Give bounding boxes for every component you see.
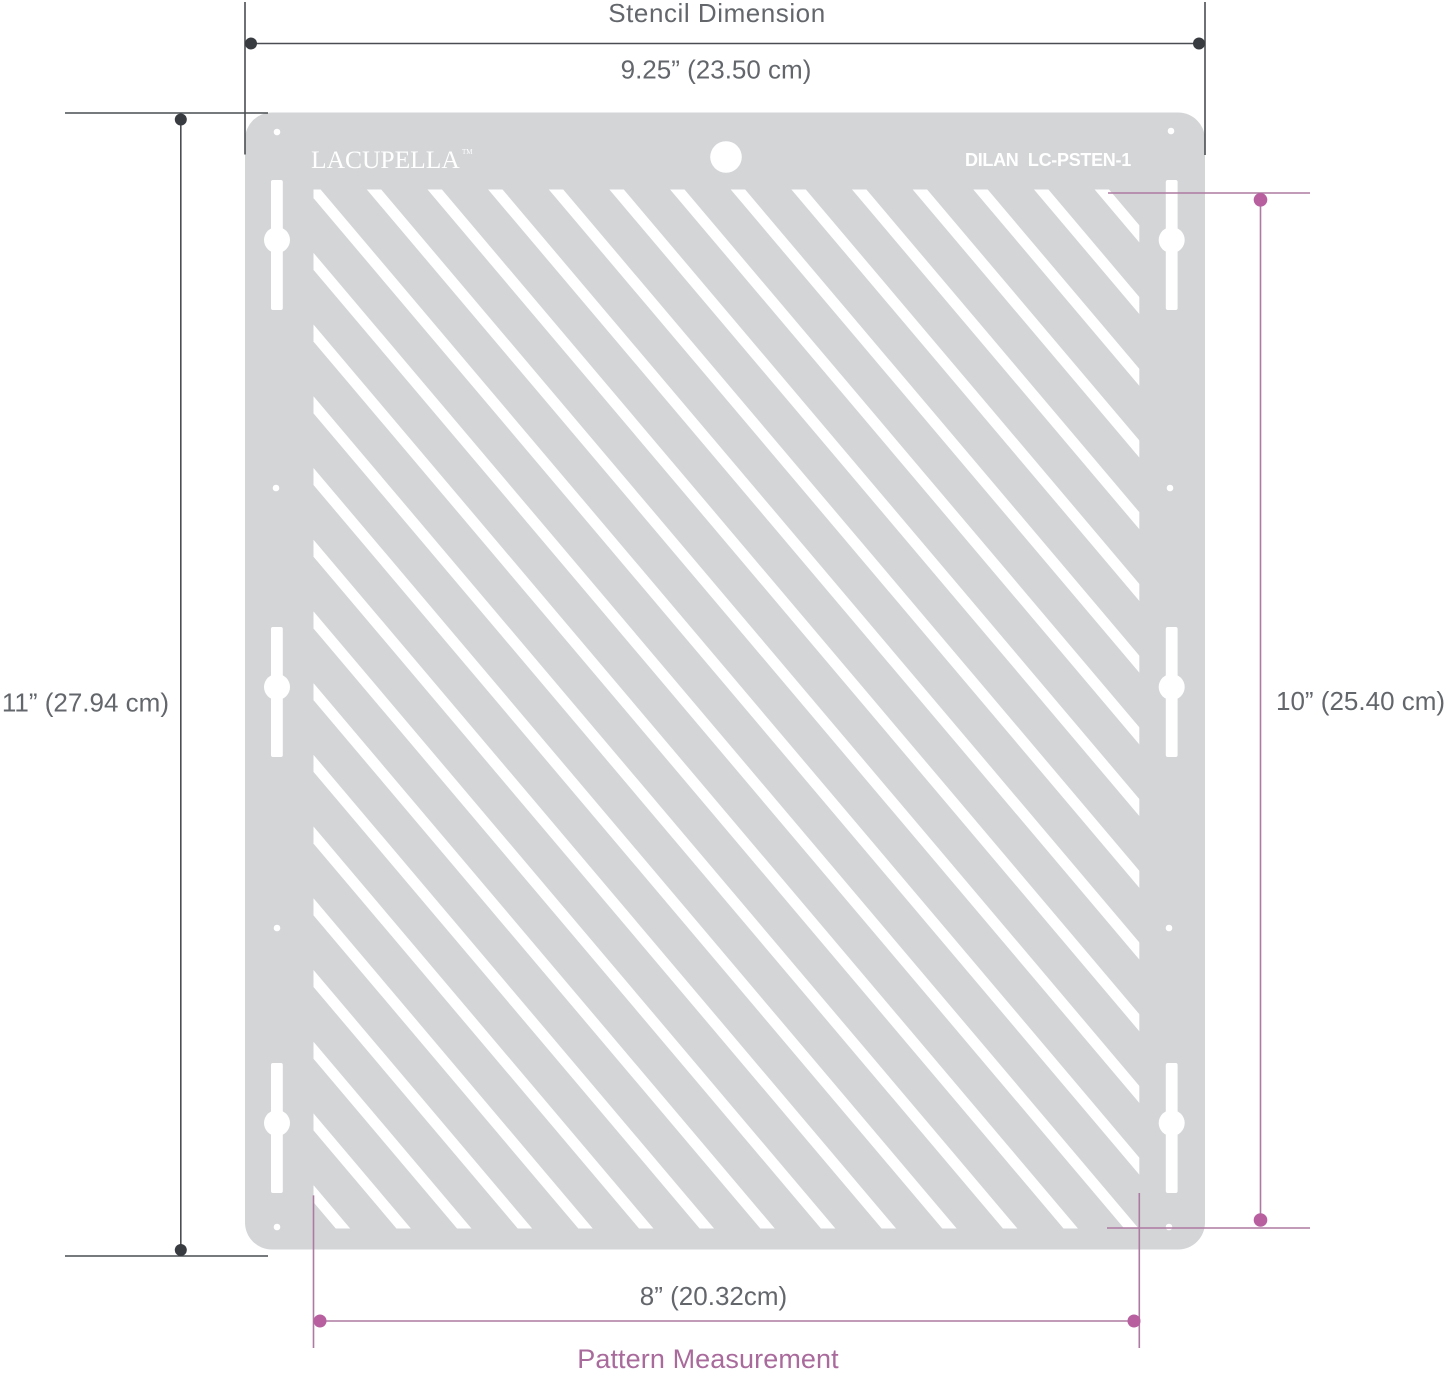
svg-text:DILAN LC-PSTEN-1: DILAN LC-PSTEN-1 <box>965 150 1131 170</box>
svg-text:LACUPELLA: LACUPELLA <box>311 145 460 174</box>
svg-text:8” (20.32cm): 8” (20.32cm) <box>640 1281 787 1311</box>
svg-text:10” (25.40 cm): 10” (25.40 cm) <box>1276 686 1445 716</box>
svg-text:Stencil Dimension: Stencil Dimension <box>608 0 825 28</box>
svg-text:11” (27.94 cm): 11” (27.94 cm) <box>2 688 169 718</box>
svg-text:Pattern Measurement: Pattern Measurement <box>577 1344 839 1374</box>
svg-text:TM: TM <box>462 148 473 156</box>
svg-text:9.25” (23.50 cm): 9.25” (23.50 cm) <box>621 55 812 85</box>
